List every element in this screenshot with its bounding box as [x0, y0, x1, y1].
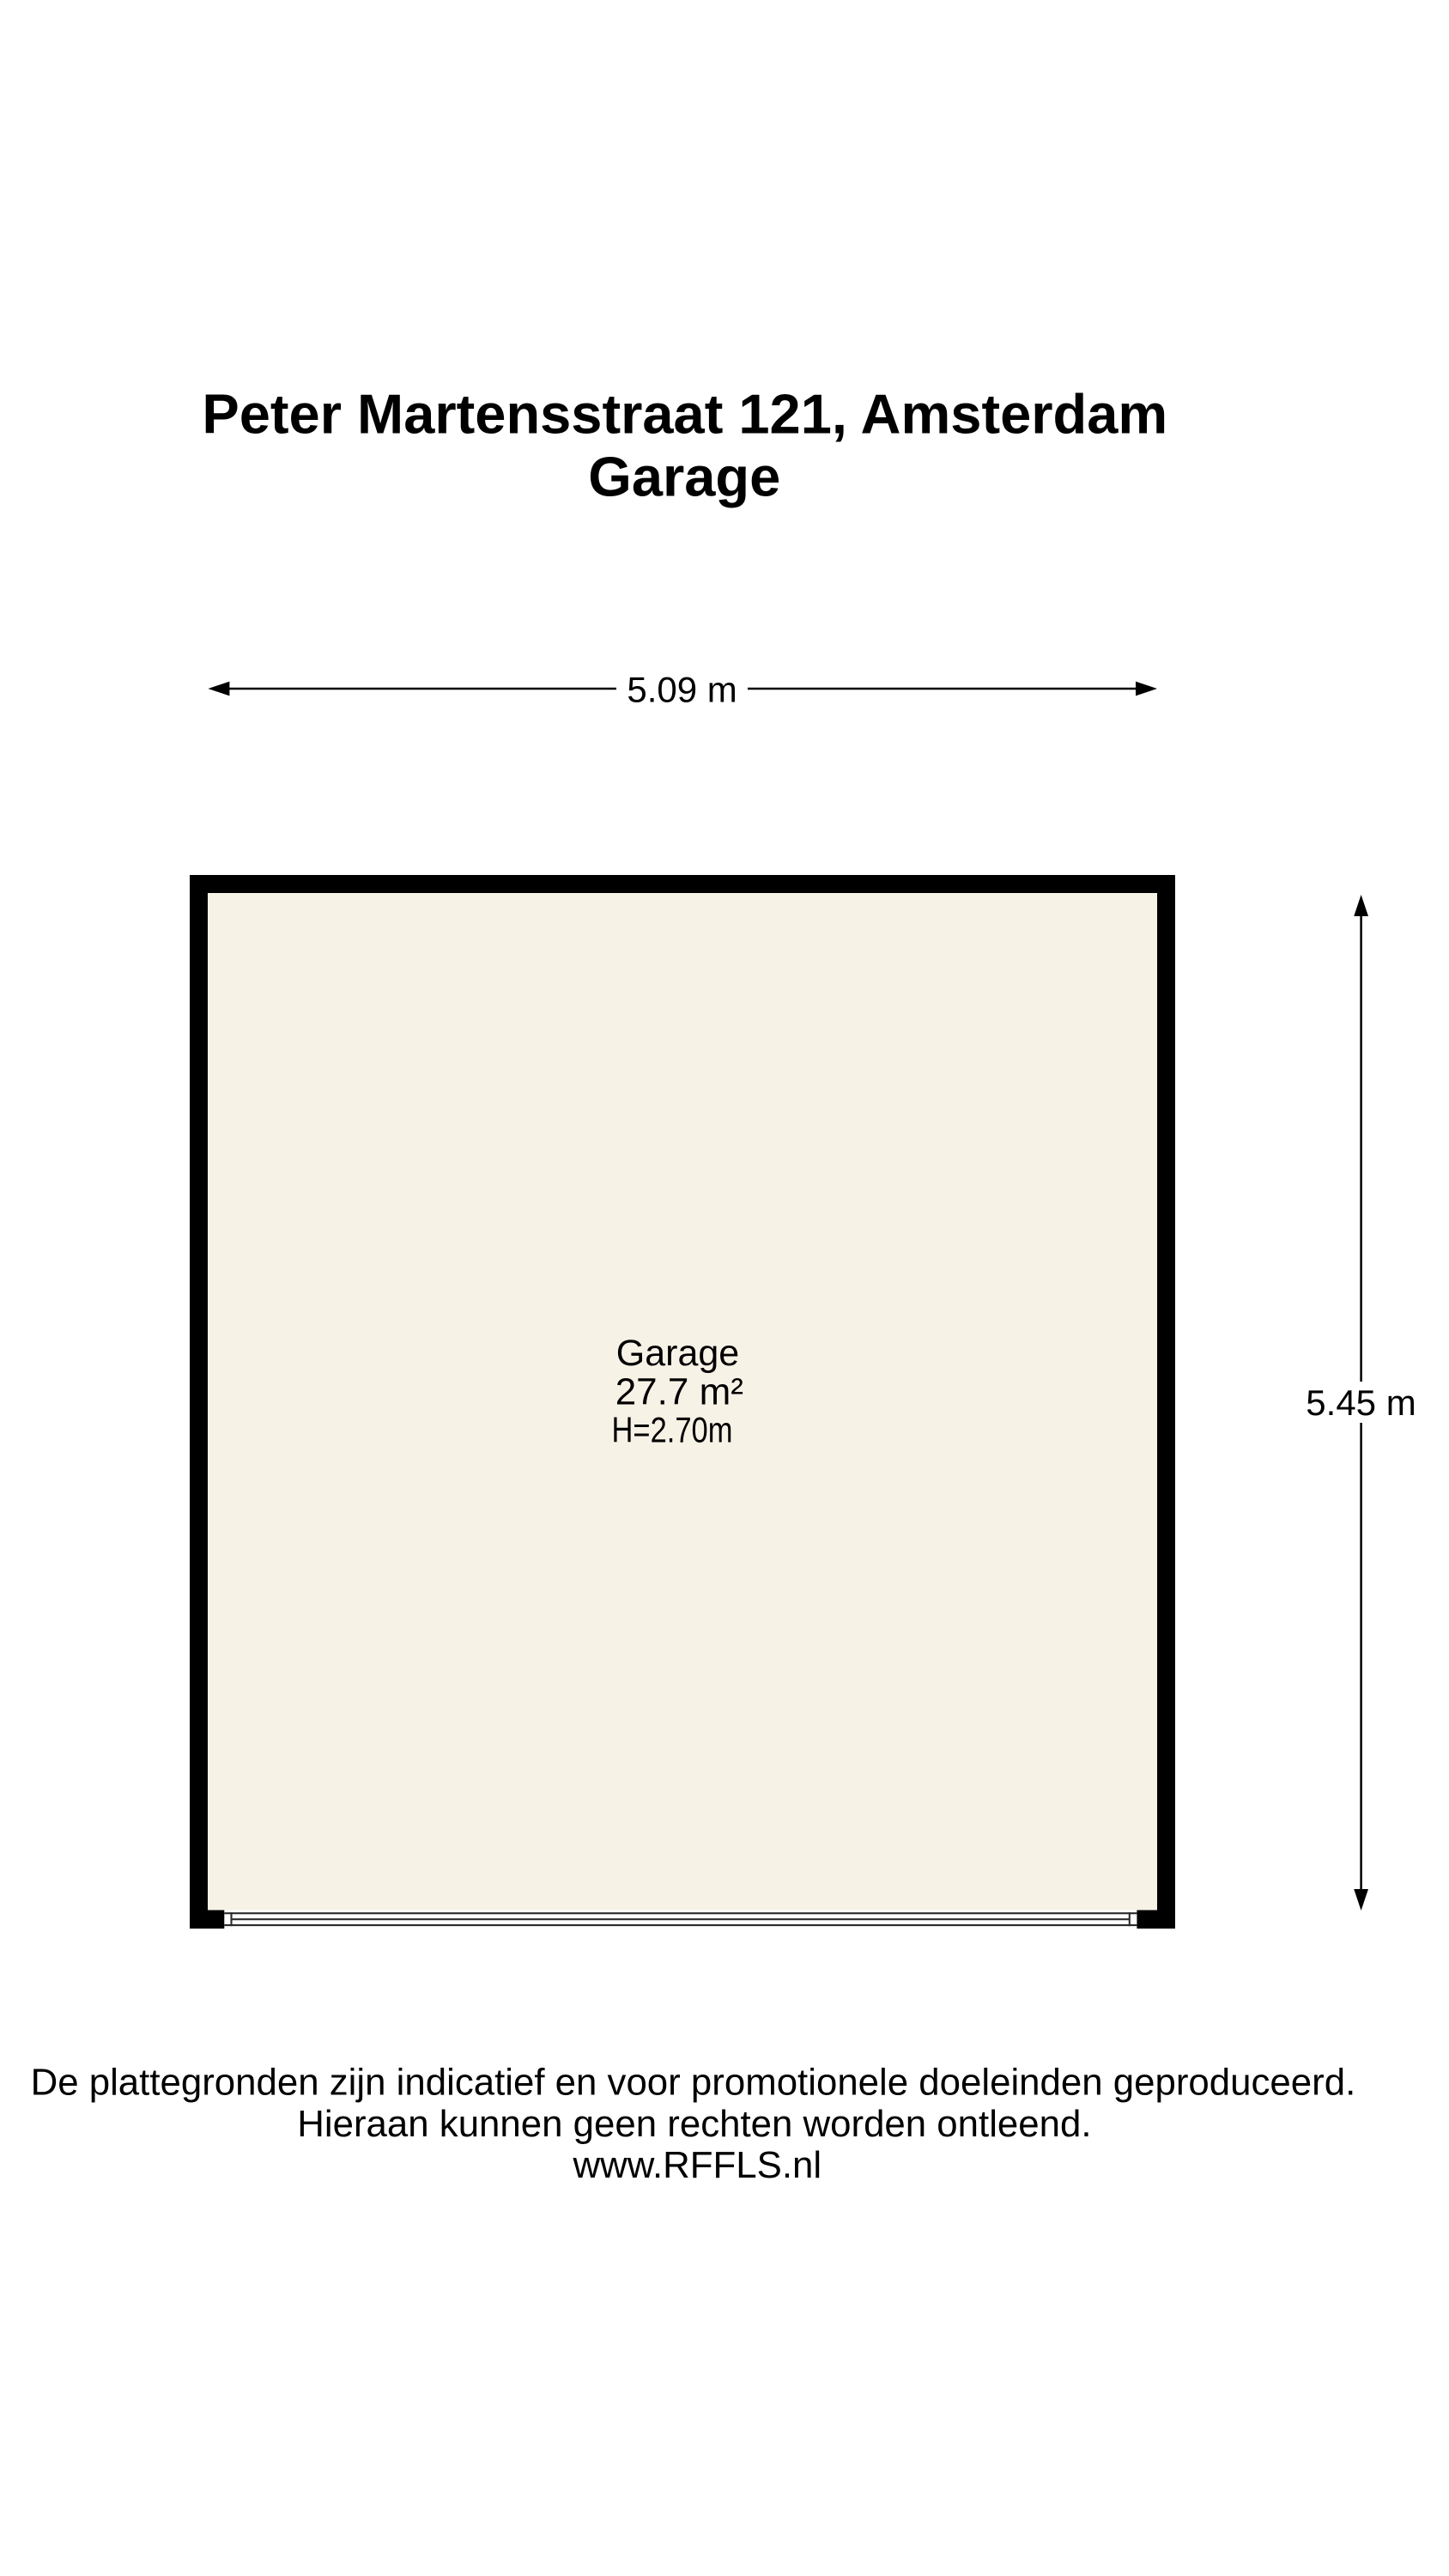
- svg-text:5.09 m: 5.09 m: [627, 670, 737, 710]
- svg-text:Garage: Garage: [588, 446, 780, 508]
- svg-text:www.RFFLS.nl: www.RFFLS.nl: [572, 2144, 822, 2186]
- svg-text:27.7 m²: 27.7 m²: [615, 1371, 743, 1413]
- svg-text:De plattegronden zijn indicati: De plattegronden zijn indicatief en voor…: [31, 2062, 1356, 2104]
- svg-text:H=2.70m: H=2.70m: [612, 1410, 733, 1450]
- svg-text:Peter Martensstraat 121, Amste: Peter Martensstraat 121, Amsterdam: [202, 383, 1167, 446]
- svg-text:Hieraan kunnen geen rechten wo: Hieraan kunnen geen rechten worden ontle…: [297, 2103, 1091, 2145]
- svg-text:5.45 m: 5.45 m: [1306, 1382, 1416, 1423]
- svg-text:Garage: Garage: [616, 1333, 739, 1374]
